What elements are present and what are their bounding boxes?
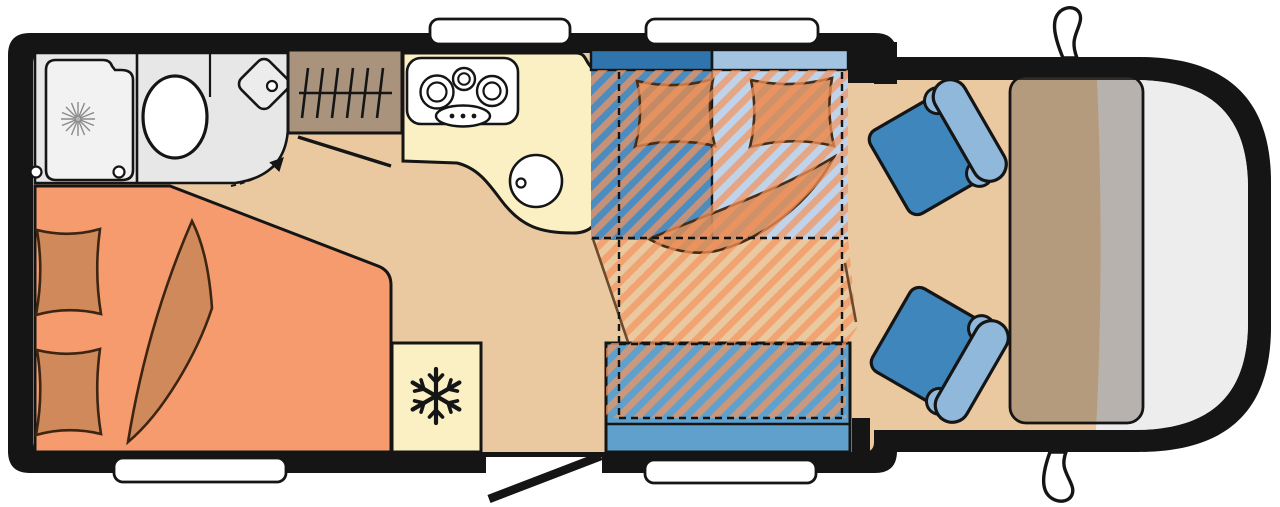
bench-backrest-light: [712, 50, 848, 70]
wing-mirror-top-icon: [1055, 8, 1081, 58]
dashboard: [1010, 76, 1143, 423]
wardrobe: [288, 50, 402, 133]
top-kitchen-window: [430, 19, 570, 44]
shower-drain-icon: [61, 102, 95, 136]
sink-faucet-icon: [517, 179, 526, 188]
toilet: [143, 76, 207, 158]
wall-stub-bottom: [852, 418, 870, 453]
wall-stub-top: [848, 42, 897, 83]
rear-pillow-top: [36, 229, 101, 315]
motorhome-floorplan: [0, 0, 1280, 507]
hob-burners-icon: [407, 58, 518, 127]
drop-down-bed-overlay: [591, 70, 857, 418]
shower-fitting-right: [114, 167, 125, 178]
entrance-door: [486, 455, 602, 499]
shower-tray: [46, 60, 133, 180]
fridge: [392, 343, 481, 452]
wing-mirror-bottom-icon: [1044, 452, 1073, 501]
basin-faucet-icon: [267, 81, 277, 91]
rear-pillow-bottom: [36, 349, 101, 435]
dinette: [591, 50, 857, 452]
bottom-bed-window: [114, 458, 286, 482]
bottom-bench-window: [645, 460, 816, 483]
bench-backrest-dark: [591, 50, 712, 70]
shower-fitting-left: [31, 167, 42, 178]
top-dinette-window: [646, 19, 818, 44]
floorplan-canvas: [0, 0, 1280, 507]
